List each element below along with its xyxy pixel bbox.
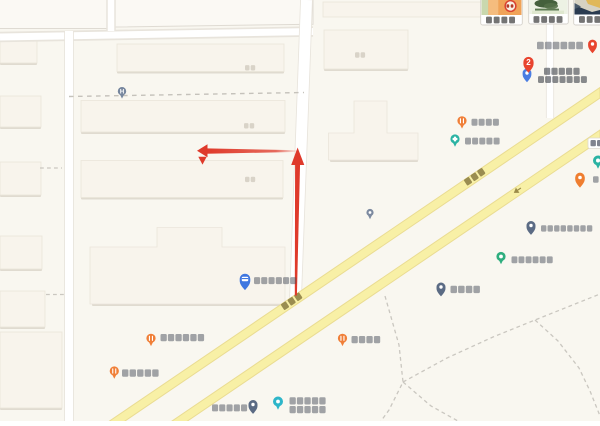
svg-text:2: 2 <box>526 58 531 67</box>
svg-text:H: H <box>120 90 124 96</box>
